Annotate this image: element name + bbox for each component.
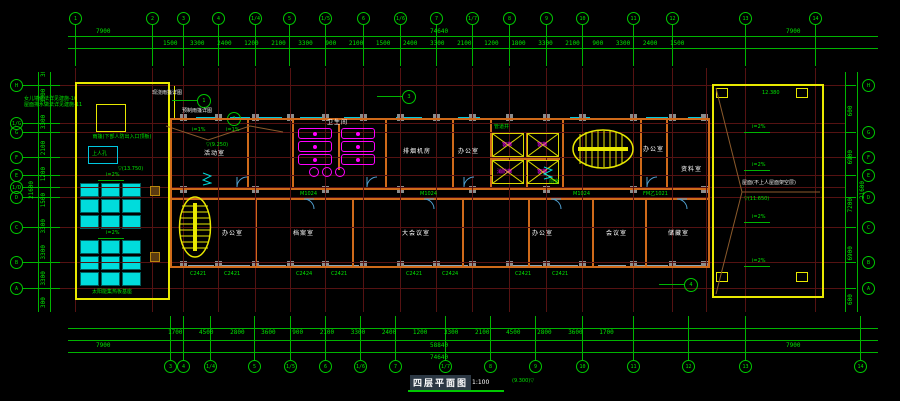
right-roof-label: 屋面(不上人屋面架空层) bbox=[726, 180, 812, 186]
grid-bubble-left: E bbox=[10, 169, 23, 182]
title-level-note: (9.300)▽ bbox=[512, 378, 534, 384]
grid-tick-bottom bbox=[688, 316, 689, 360]
room-label: 大会议室 bbox=[402, 230, 430, 237]
grid-bubble-bottom: 8 bbox=[484, 360, 497, 373]
right-roof-slope-c: i=2% bbox=[752, 214, 766, 220]
grid-bubble-bottom: 13 bbox=[739, 360, 752, 373]
room-label: 活动室 bbox=[204, 150, 225, 157]
grid-bubble-left: F bbox=[10, 151, 23, 164]
grid-tick-bottom bbox=[360, 316, 361, 360]
grid-bubble-bottom: 14 bbox=[854, 360, 867, 373]
elevator-label: 消防梯 bbox=[497, 169, 512, 175]
grid-tick-bottom bbox=[490, 316, 491, 360]
grid-tick-bottom bbox=[860, 316, 861, 360]
grid-bubble-top: 11 bbox=[627, 12, 640, 25]
dim-top-total-left: 7900 bbox=[96, 28, 110, 35]
left-roof-canopy-box bbox=[96, 104, 126, 132]
grid-bubble-left: A bbox=[10, 282, 23, 295]
grid-bubble-top: 14 bbox=[809, 12, 822, 25]
dim-bottom-total: 74640 bbox=[430, 354, 448, 361]
window-code: C2421 bbox=[224, 271, 240, 277]
right-roof-slope-arrow-b bbox=[744, 170, 770, 171]
right-roof-level-text: (11.650) bbox=[748, 196, 769, 202]
elevator-label: 客梯 bbox=[502, 142, 512, 148]
stair-east bbox=[572, 129, 634, 169]
dim-right-segments: 600 6900 7200 6900 600 bbox=[847, 75, 854, 305]
grid-bubble-top: 10 bbox=[576, 12, 589, 25]
grid-tick-top bbox=[152, 24, 153, 66]
drawing-scale: 1:100 bbox=[472, 379, 489, 386]
left-roof-panel-note: 太阳能集热板基座 bbox=[92, 289, 132, 295]
grid-bubble-top: 1/7 bbox=[466, 12, 479, 25]
window-code: C2421 bbox=[552, 271, 568, 277]
window-code: C2421 bbox=[190, 271, 206, 277]
title-underline bbox=[408, 390, 504, 392]
grid-tick-bottom bbox=[535, 316, 536, 360]
left-roof-level-marker: ▽(13.750) bbox=[118, 166, 143, 172]
dim-line-top-2 bbox=[68, 48, 878, 49]
dim-line-top-1 bbox=[68, 36, 878, 37]
room-label: 办公室 bbox=[643, 146, 664, 153]
toilet-stall bbox=[298, 154, 332, 165]
right-roof-slope-d: i=2% bbox=[752, 258, 766, 264]
grid-tick-bottom bbox=[325, 316, 326, 360]
grid-bubble-bottom: 10 bbox=[576, 360, 589, 373]
grid-tick-bottom bbox=[183, 316, 184, 360]
door-arc bbox=[303, 198, 315, 210]
grid-bubble-top: 8 bbox=[503, 12, 516, 25]
door-arc bbox=[550, 198, 562, 210]
dim-line-left-1 bbox=[38, 72, 39, 312]
dim-line-bottom-2 bbox=[68, 340, 878, 341]
window-code: C2421 bbox=[406, 271, 422, 277]
detail-callout-4-label: 4 bbox=[689, 282, 692, 288]
dim-bottom-segments: 1700 4500 2800 3600 900 2100 3300 2400 1… bbox=[168, 329, 713, 336]
toilet-sink bbox=[309, 167, 319, 177]
stair-west bbox=[178, 196, 212, 258]
partition-squiggle bbox=[543, 166, 553, 180]
door-arc bbox=[646, 176, 658, 188]
grid-bubble-bottom: 5 bbox=[248, 360, 261, 373]
window-code: C2424 bbox=[296, 271, 312, 277]
grid-bubble-bottom: 1/5 bbox=[284, 360, 297, 373]
elevator-label: 客梯 bbox=[537, 142, 547, 148]
title-level-text: (9.300) bbox=[512, 378, 530, 384]
grid-bubble-top: 6 bbox=[357, 12, 370, 25]
right-roof-slope-arrow-c bbox=[744, 222, 770, 223]
detail-callout-3-leader bbox=[377, 96, 402, 97]
room-label: 排烟机房 bbox=[403, 148, 431, 155]
toilet-stall bbox=[298, 128, 332, 139]
grid-bubble-bottom: 9 bbox=[529, 360, 542, 373]
toilet-stall bbox=[341, 128, 375, 139]
detail-callout-1-label: 1 bbox=[202, 98, 205, 104]
grid-bubble-left: B bbox=[10, 256, 23, 269]
grid-tick-bottom bbox=[395, 316, 396, 360]
building-level-text: (9.250) bbox=[210, 142, 228, 148]
right-roof-slope-arrow-d bbox=[744, 266, 770, 267]
dim-bottom-total-right: 7900 bbox=[786, 342, 800, 349]
detail-callout-4-leader bbox=[659, 284, 684, 285]
grid-bubble-left: C bbox=[10, 221, 23, 234]
elevator-shaft-1: 客梯 bbox=[492, 133, 524, 157]
door-arc bbox=[236, 176, 248, 188]
grid-bubble-bottom: 7 bbox=[389, 360, 402, 373]
door-arc bbox=[366, 176, 378, 188]
grid-bubble-top: 1/4 bbox=[249, 12, 262, 25]
detail-callout-3: 3 bbox=[402, 90, 416, 104]
grid-bubble-top: 9 bbox=[540, 12, 553, 25]
cad-floor-plan-canvas: ABCDEFGHABCD1/DEFG1/GH1413121110981/771/… bbox=[0, 0, 900, 401]
room-label: 资料室 bbox=[681, 166, 702, 173]
right-roof-slope-b: i=2% bbox=[752, 162, 766, 168]
dim-line-left-2 bbox=[50, 72, 51, 312]
grid-bubble-bottom: 4 bbox=[177, 360, 190, 373]
drawing-title: 四层平面图 bbox=[410, 375, 471, 390]
grid-bubble-bottom: 3 bbox=[164, 360, 177, 373]
shaft-note: 管道井 bbox=[494, 124, 509, 130]
grid-tick-bottom bbox=[745, 316, 746, 360]
grid-bubble-left: 1/G bbox=[10, 117, 23, 130]
dim-top-total-right: 7900 bbox=[786, 28, 800, 35]
canopy-note-1: 现浇雨篷详图 bbox=[152, 90, 182, 96]
dim-bottom-total-left: 7900 bbox=[96, 342, 110, 349]
dim-right-total: 21600 bbox=[859, 75, 866, 305]
detail-callout-1-leader bbox=[172, 100, 197, 101]
elevator-shaft-2: 客梯 bbox=[527, 133, 559, 157]
detail-callout-4: 4 bbox=[684, 278, 698, 292]
building-level-marker: ▽(9.250) bbox=[206, 142, 228, 148]
grid-bubble-left: 1/D bbox=[10, 181, 23, 194]
grid-tick-bottom bbox=[210, 316, 211, 360]
room-label: 卫生间 bbox=[327, 119, 348, 126]
room-label: 办公室 bbox=[532, 230, 553, 237]
room-label: 会议室 bbox=[606, 230, 627, 237]
grid-bubble-bottom: 6 bbox=[319, 360, 332, 373]
right-roof-slope-a: i=2% bbox=[752, 124, 766, 130]
grid-bubble-top: 13 bbox=[739, 12, 752, 25]
left-roof-slope-arrow-2 bbox=[98, 238, 124, 239]
door-arc bbox=[463, 176, 475, 188]
grid-tick-bottom bbox=[254, 316, 255, 360]
room-label: 档案室 bbox=[293, 230, 314, 237]
grid-bubble-top: 1/5 bbox=[319, 12, 332, 25]
grid-bubble-top: 3 bbox=[177, 12, 190, 25]
left-roof-slope-1: i=2% bbox=[106, 172, 120, 178]
left-roof-canopy-note: 雨篷(下部人防出入口顶板) bbox=[74, 134, 170, 140]
grid-tick-bottom bbox=[582, 316, 583, 360]
grid-bubble-bottom: 12 bbox=[682, 360, 695, 373]
dim-top-segments: 1500 3300 2400 1200 2100 3300 900 2100 1… bbox=[163, 40, 723, 47]
toilet-stall bbox=[341, 141, 375, 152]
grid-bubble-top: 5 bbox=[283, 12, 296, 25]
grid-tick-top bbox=[75, 24, 76, 66]
door-arc bbox=[676, 198, 688, 210]
grid-bubble-left: H bbox=[10, 79, 23, 92]
dim-line-right-1 bbox=[845, 72, 846, 312]
window-code: C2421 bbox=[331, 271, 347, 277]
room-label: 办公室 bbox=[458, 148, 479, 155]
grid-tick-bottom bbox=[633, 316, 634, 360]
toilet-stall bbox=[298, 141, 332, 152]
right-roof-level-marker: ▽(11.650) bbox=[744, 196, 769, 202]
grid-bubble-top: 1/6 bbox=[394, 12, 407, 25]
toilet-sink bbox=[322, 167, 332, 177]
door-code: FM乙1021 bbox=[643, 191, 668, 197]
grid-bubble-top: 1 bbox=[69, 12, 82, 25]
grid-bubble-top: 2 bbox=[146, 12, 159, 25]
detail-callout-1: 1 bbox=[197, 94, 211, 108]
dim-top-total-mid: 74640 bbox=[430, 28, 448, 35]
roof-drain-2 bbox=[150, 252, 160, 262]
right-roof-level-top: 12.380 bbox=[762, 90, 780, 96]
grid-bubble-top: 12 bbox=[666, 12, 679, 25]
left-roof-slope-2: i=2% bbox=[106, 230, 120, 236]
detail-callout-3-label: 3 bbox=[407, 94, 410, 100]
dim-bottom-total-mid: 58840 bbox=[430, 342, 448, 349]
right-roof-slope-arrow-a bbox=[744, 132, 770, 133]
toilet-stall bbox=[341, 154, 375, 165]
toilet-sink bbox=[335, 167, 345, 177]
window-code: C2421 bbox=[515, 271, 531, 277]
dim-line-bottom-3 bbox=[68, 352, 878, 353]
room-label: 储藏室 bbox=[668, 230, 689, 237]
door-arc bbox=[423, 198, 435, 210]
door-code: M1024 bbox=[573, 191, 590, 197]
grid-bubble-bottom: 1/4 bbox=[204, 360, 217, 373]
grid-bubble-top: 4 bbox=[212, 12, 225, 25]
canopy-note-2: 预制雨篷详图 bbox=[182, 108, 212, 114]
grid-tick-bottom bbox=[290, 316, 291, 360]
grid-tick-top bbox=[745, 24, 746, 66]
grid-tick-bottom bbox=[170, 316, 171, 360]
door-code: M1024 bbox=[420, 191, 437, 197]
left-roof-level-text: (13.750) bbox=[122, 166, 143, 172]
grid-tick-top bbox=[815, 24, 816, 66]
grid-bubble-bottom: 11 bbox=[627, 360, 640, 373]
window-code: C2424 bbox=[442, 271, 458, 277]
room-label: 办公室 bbox=[222, 230, 243, 237]
door-code: M1024 bbox=[300, 191, 317, 197]
grid-bubble-bottom: 1/7 bbox=[439, 360, 452, 373]
partition-squiggle bbox=[202, 172, 212, 186]
dim-line-right-2 bbox=[857, 72, 858, 312]
roof-hatch-label: 上人孔 bbox=[92, 151, 107, 157]
grid-bubble-top: 7 bbox=[430, 12, 443, 25]
left-roof-slope-arrow-1 bbox=[98, 180, 124, 181]
grid-bubble-bottom: 1/6 bbox=[354, 360, 367, 373]
elevator-shaft-3: 消防梯 bbox=[492, 160, 524, 184]
roof-drain-1 bbox=[150, 186, 160, 196]
